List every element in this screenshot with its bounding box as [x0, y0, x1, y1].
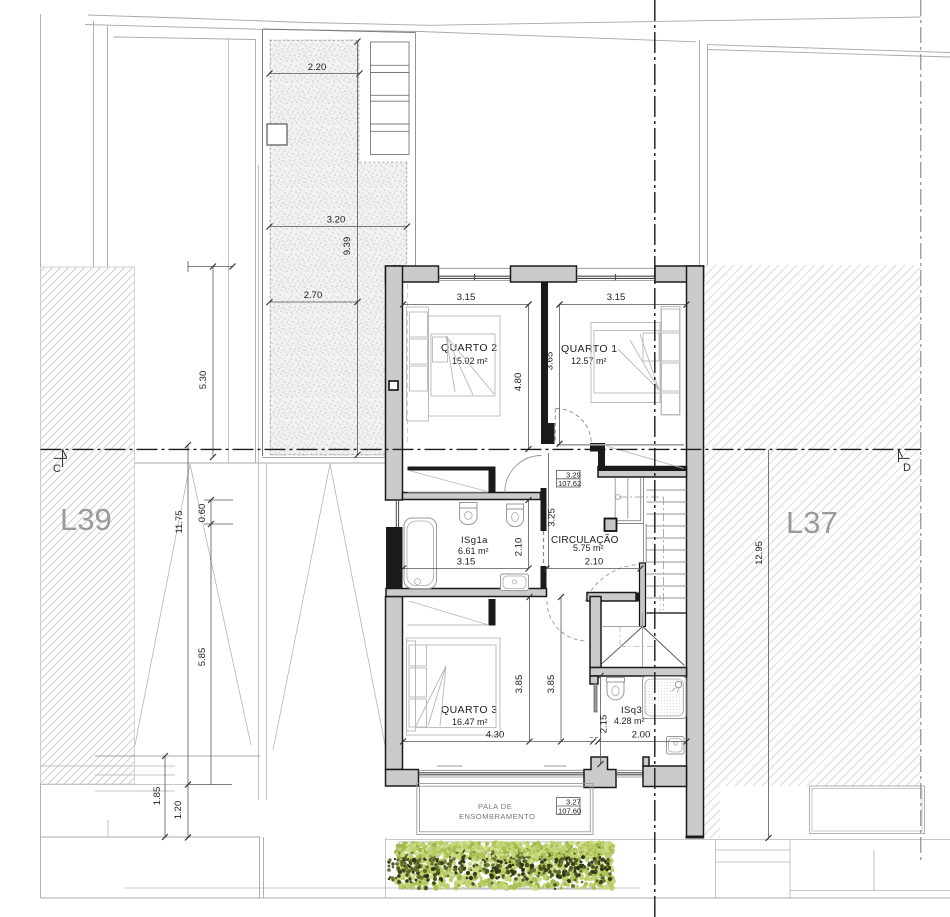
svg-text:2.20: 2.20 [308, 62, 327, 73]
svg-text:2.10: 2.10 [585, 557, 604, 568]
svg-text:3.15: 3.15 [607, 292, 626, 303]
svg-text:5.75 m²: 5.75 m² [573, 543, 604, 553]
svg-text:2.70: 2.70 [304, 290, 323, 301]
svg-text:1.85: 1.85 [152, 787, 163, 806]
svg-text:5.30: 5.30 [198, 371, 209, 390]
svg-text:3.15: 3.15 [457, 557, 476, 568]
svg-text:107.62: 107.62 [558, 479, 581, 488]
svg-text:C: C [53, 463, 61, 475]
svg-text:QUARTO 1: QUARTO 1 [561, 343, 618, 355]
svg-text:ENSOMBRAMENTO: ENSOMBRAMENTO [459, 812, 535, 821]
svg-text:12.57 m²: 12.57 m² [571, 356, 607, 366]
svg-text:ISq3: ISq3 [621, 705, 642, 716]
svg-text:3.85: 3.85 [514, 675, 525, 694]
svg-text:L39: L39 [60, 502, 112, 537]
svg-text:12.95: 12.95 [754, 541, 765, 565]
svg-text:4.28 m²: 4.28 m² [614, 716, 645, 726]
svg-text:3.27: 3.27 [566, 797, 581, 806]
svg-text:2.00: 2.00 [632, 730, 651, 741]
svg-text:6.61 m²: 6.61 m² [458, 546, 489, 556]
svg-text:3.25: 3.25 [547, 508, 558, 527]
svg-text:9.39: 9.39 [342, 237, 353, 256]
svg-text:3.65: 3.65 [545, 352, 556, 371]
svg-text:3.15: 3.15 [457, 292, 476, 303]
svg-text:L37: L37 [786, 505, 838, 540]
svg-text:1.20: 1.20 [173, 801, 184, 820]
svg-text:2.10: 2.10 [514, 538, 525, 557]
svg-text:4.30: 4.30 [486, 730, 505, 741]
svg-text:107.60: 107.60 [558, 806, 581, 815]
svg-text:D: D [903, 462, 911, 474]
svg-text:2.15: 2.15 [599, 715, 610, 734]
svg-text:0.60: 0.60 [197, 504, 208, 523]
svg-text:3.20: 3.20 [327, 215, 346, 226]
svg-text:PALA DE: PALA DE [478, 802, 512, 811]
svg-text:3.85: 3.85 [546, 675, 557, 694]
svg-text:5.85: 5.85 [197, 648, 208, 667]
svg-text:QUARTO 3: QUARTO 3 [441, 704, 498, 716]
svg-text:ISg1a: ISg1a [461, 535, 488, 546]
svg-text:11.75: 11.75 [174, 510, 185, 533]
svg-text:16.47 m²: 16.47 m² [452, 717, 488, 727]
svg-text:4.80: 4.80 [513, 373, 524, 392]
